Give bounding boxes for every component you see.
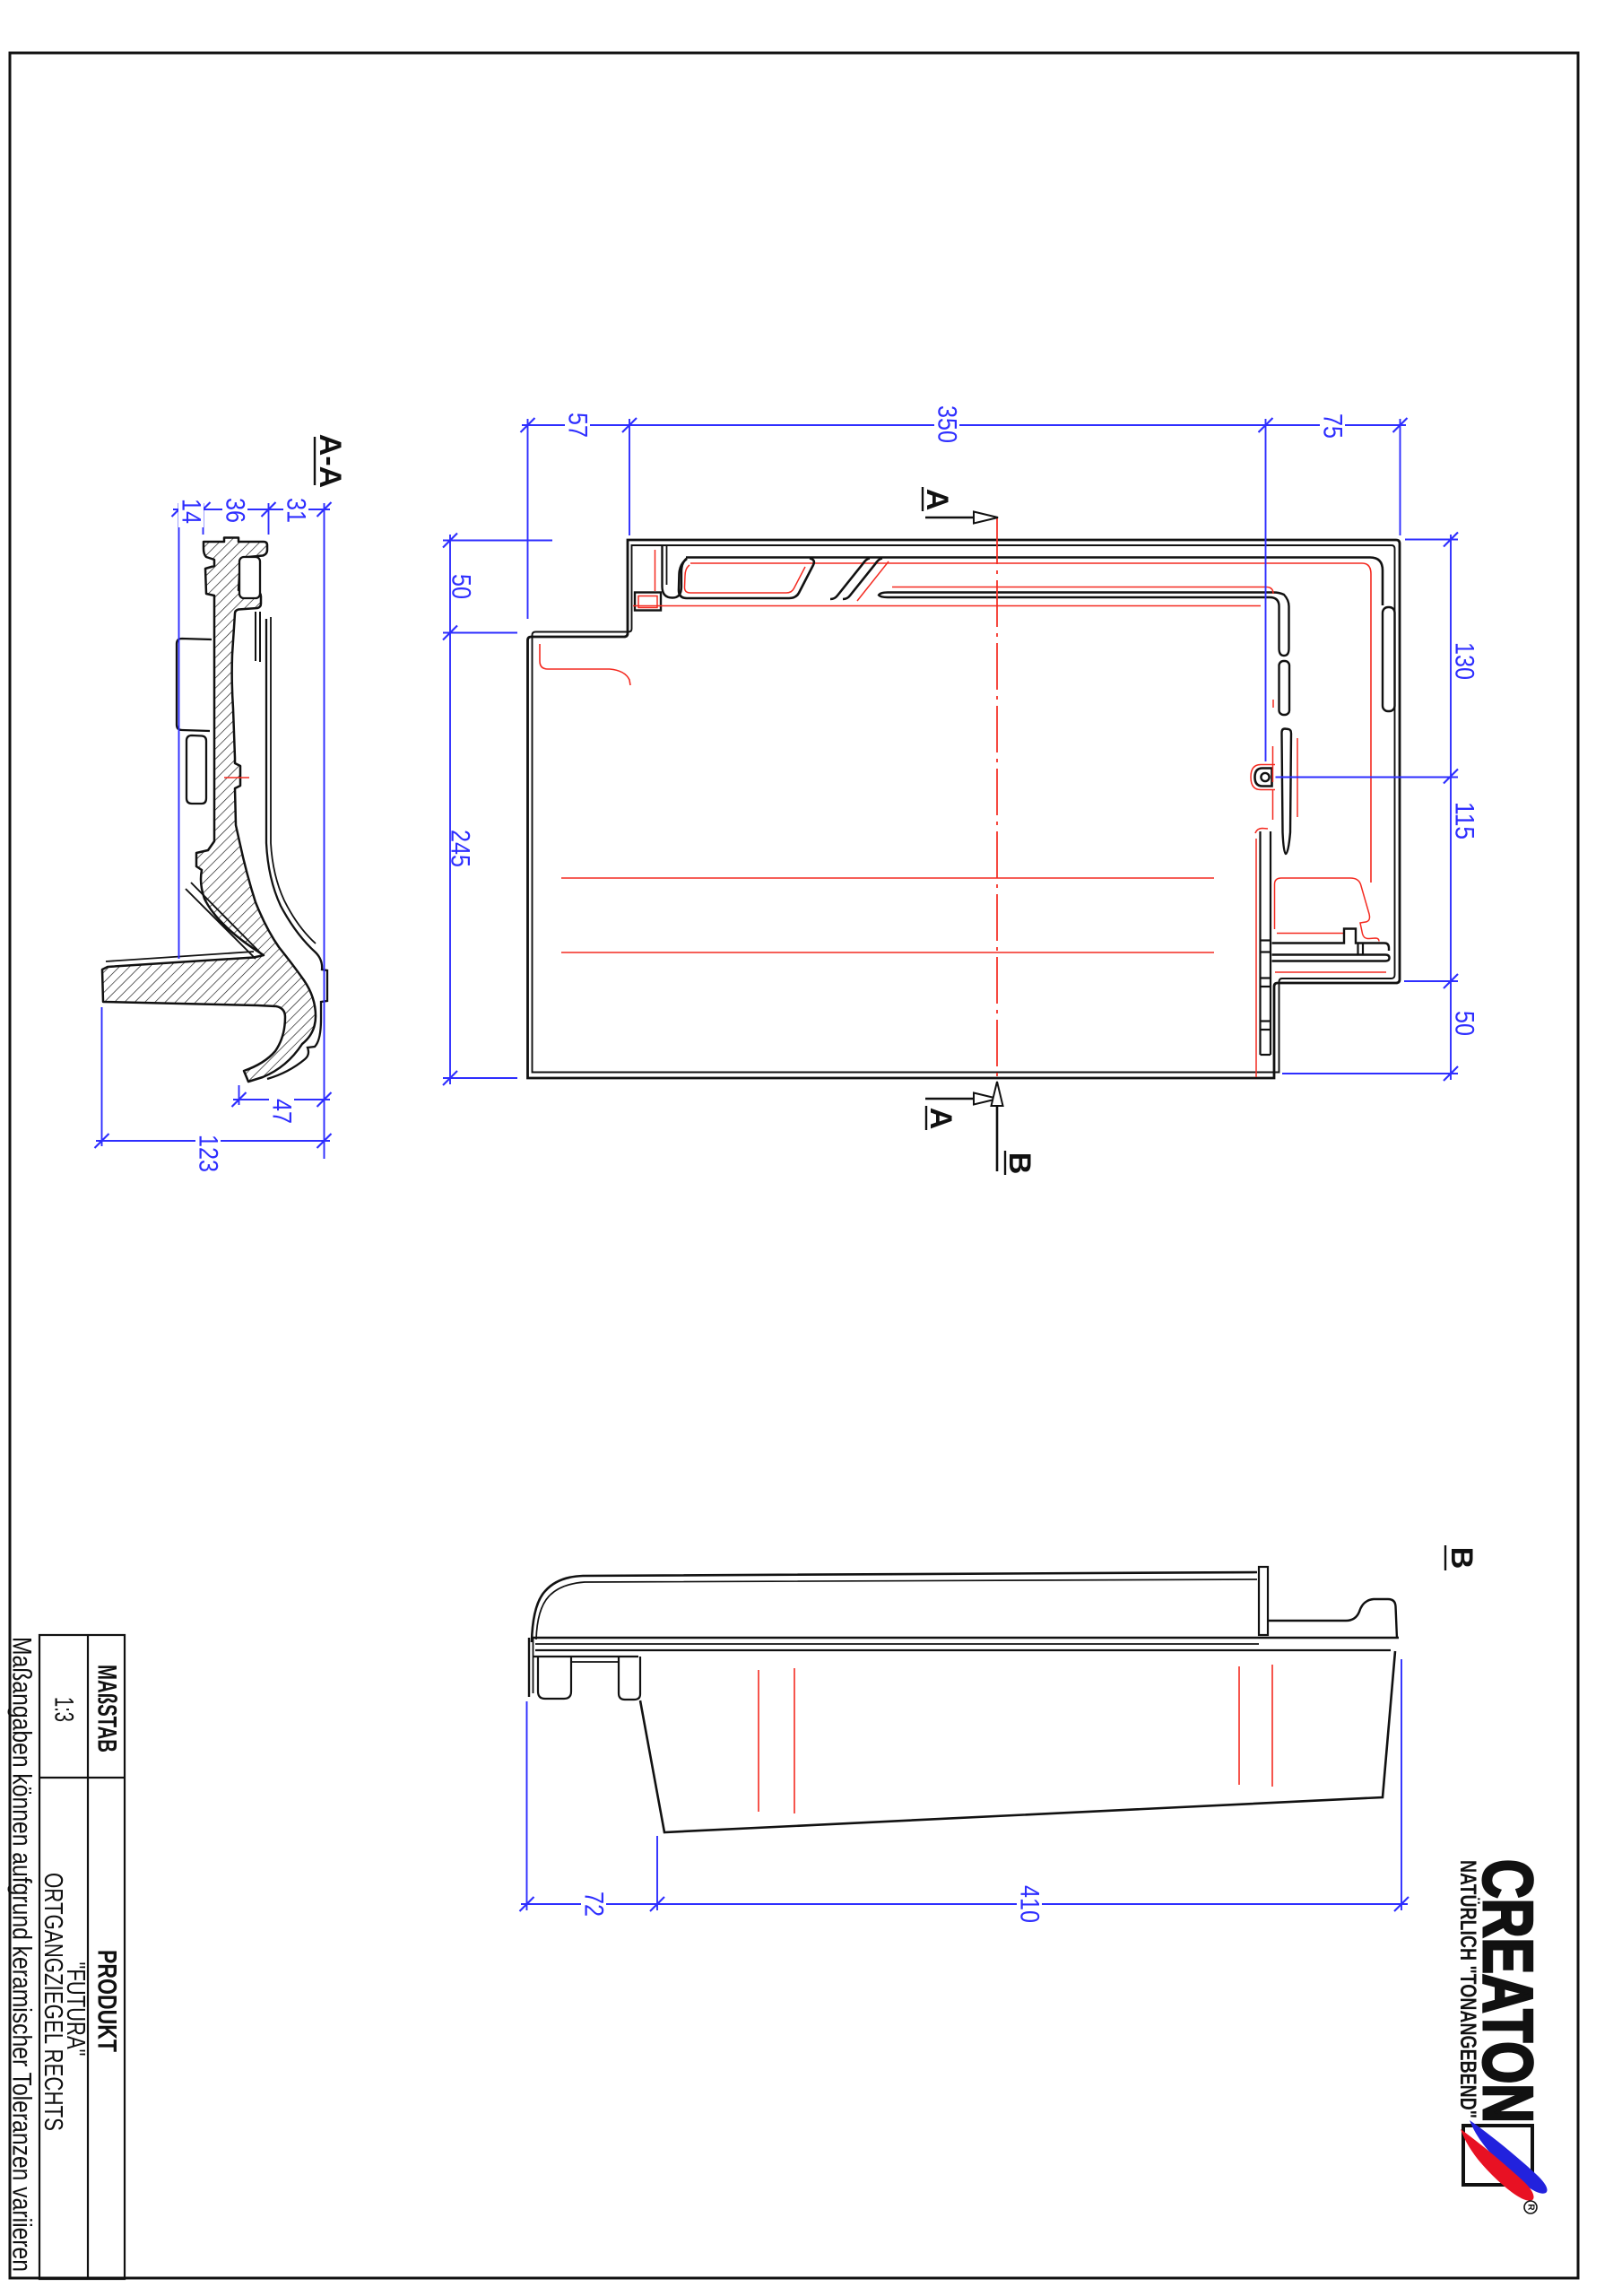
svg-text:NATÜRLICH "TONANGEBEND": NATÜRLICH "TONANGEBEND" xyxy=(1455,1860,1481,2118)
svg-text:31: 31 xyxy=(282,498,311,523)
svg-text:36: 36 xyxy=(221,498,250,523)
svg-text:50: 50 xyxy=(447,574,476,599)
svg-text:1:3: 1:3 xyxy=(49,1697,79,1722)
svg-text:ORTGANGZIEGEL RECHTS: ORTGANGZIEGEL RECHTS xyxy=(39,1873,67,2131)
svg-text:75: 75 xyxy=(1318,413,1348,439)
svg-text:14: 14 xyxy=(177,499,206,524)
svg-text:72: 72 xyxy=(579,1892,609,1917)
svg-text:123: 123 xyxy=(194,1135,223,1172)
svg-text:B: B xyxy=(1002,1152,1037,1175)
svg-text:MAßSTAB: MAßSTAB xyxy=(92,1665,122,1752)
svg-text:A-A: A-A xyxy=(313,434,347,488)
svg-text:350: 350 xyxy=(932,405,962,443)
svg-text:R: R xyxy=(1526,2204,1536,2211)
svg-text:410: 410 xyxy=(1015,1885,1045,1923)
svg-text:245: 245 xyxy=(446,830,475,867)
svg-text:B: B xyxy=(1444,1547,1479,1570)
svg-text:A: A xyxy=(920,489,954,511)
svg-text:130: 130 xyxy=(1450,642,1479,680)
svg-text:47: 47 xyxy=(267,1099,297,1124)
svg-text:Maßangaben können aufgrund ker: Maßangaben können aufgrund keramischer T… xyxy=(7,1637,37,2272)
svg-text:115: 115 xyxy=(1450,802,1479,839)
svg-text:50: 50 xyxy=(1450,1011,1479,1036)
svg-text:57: 57 xyxy=(563,413,593,438)
svg-text:A: A xyxy=(924,1108,958,1130)
svg-text:PRODUKT: PRODUKT xyxy=(92,1950,122,2052)
